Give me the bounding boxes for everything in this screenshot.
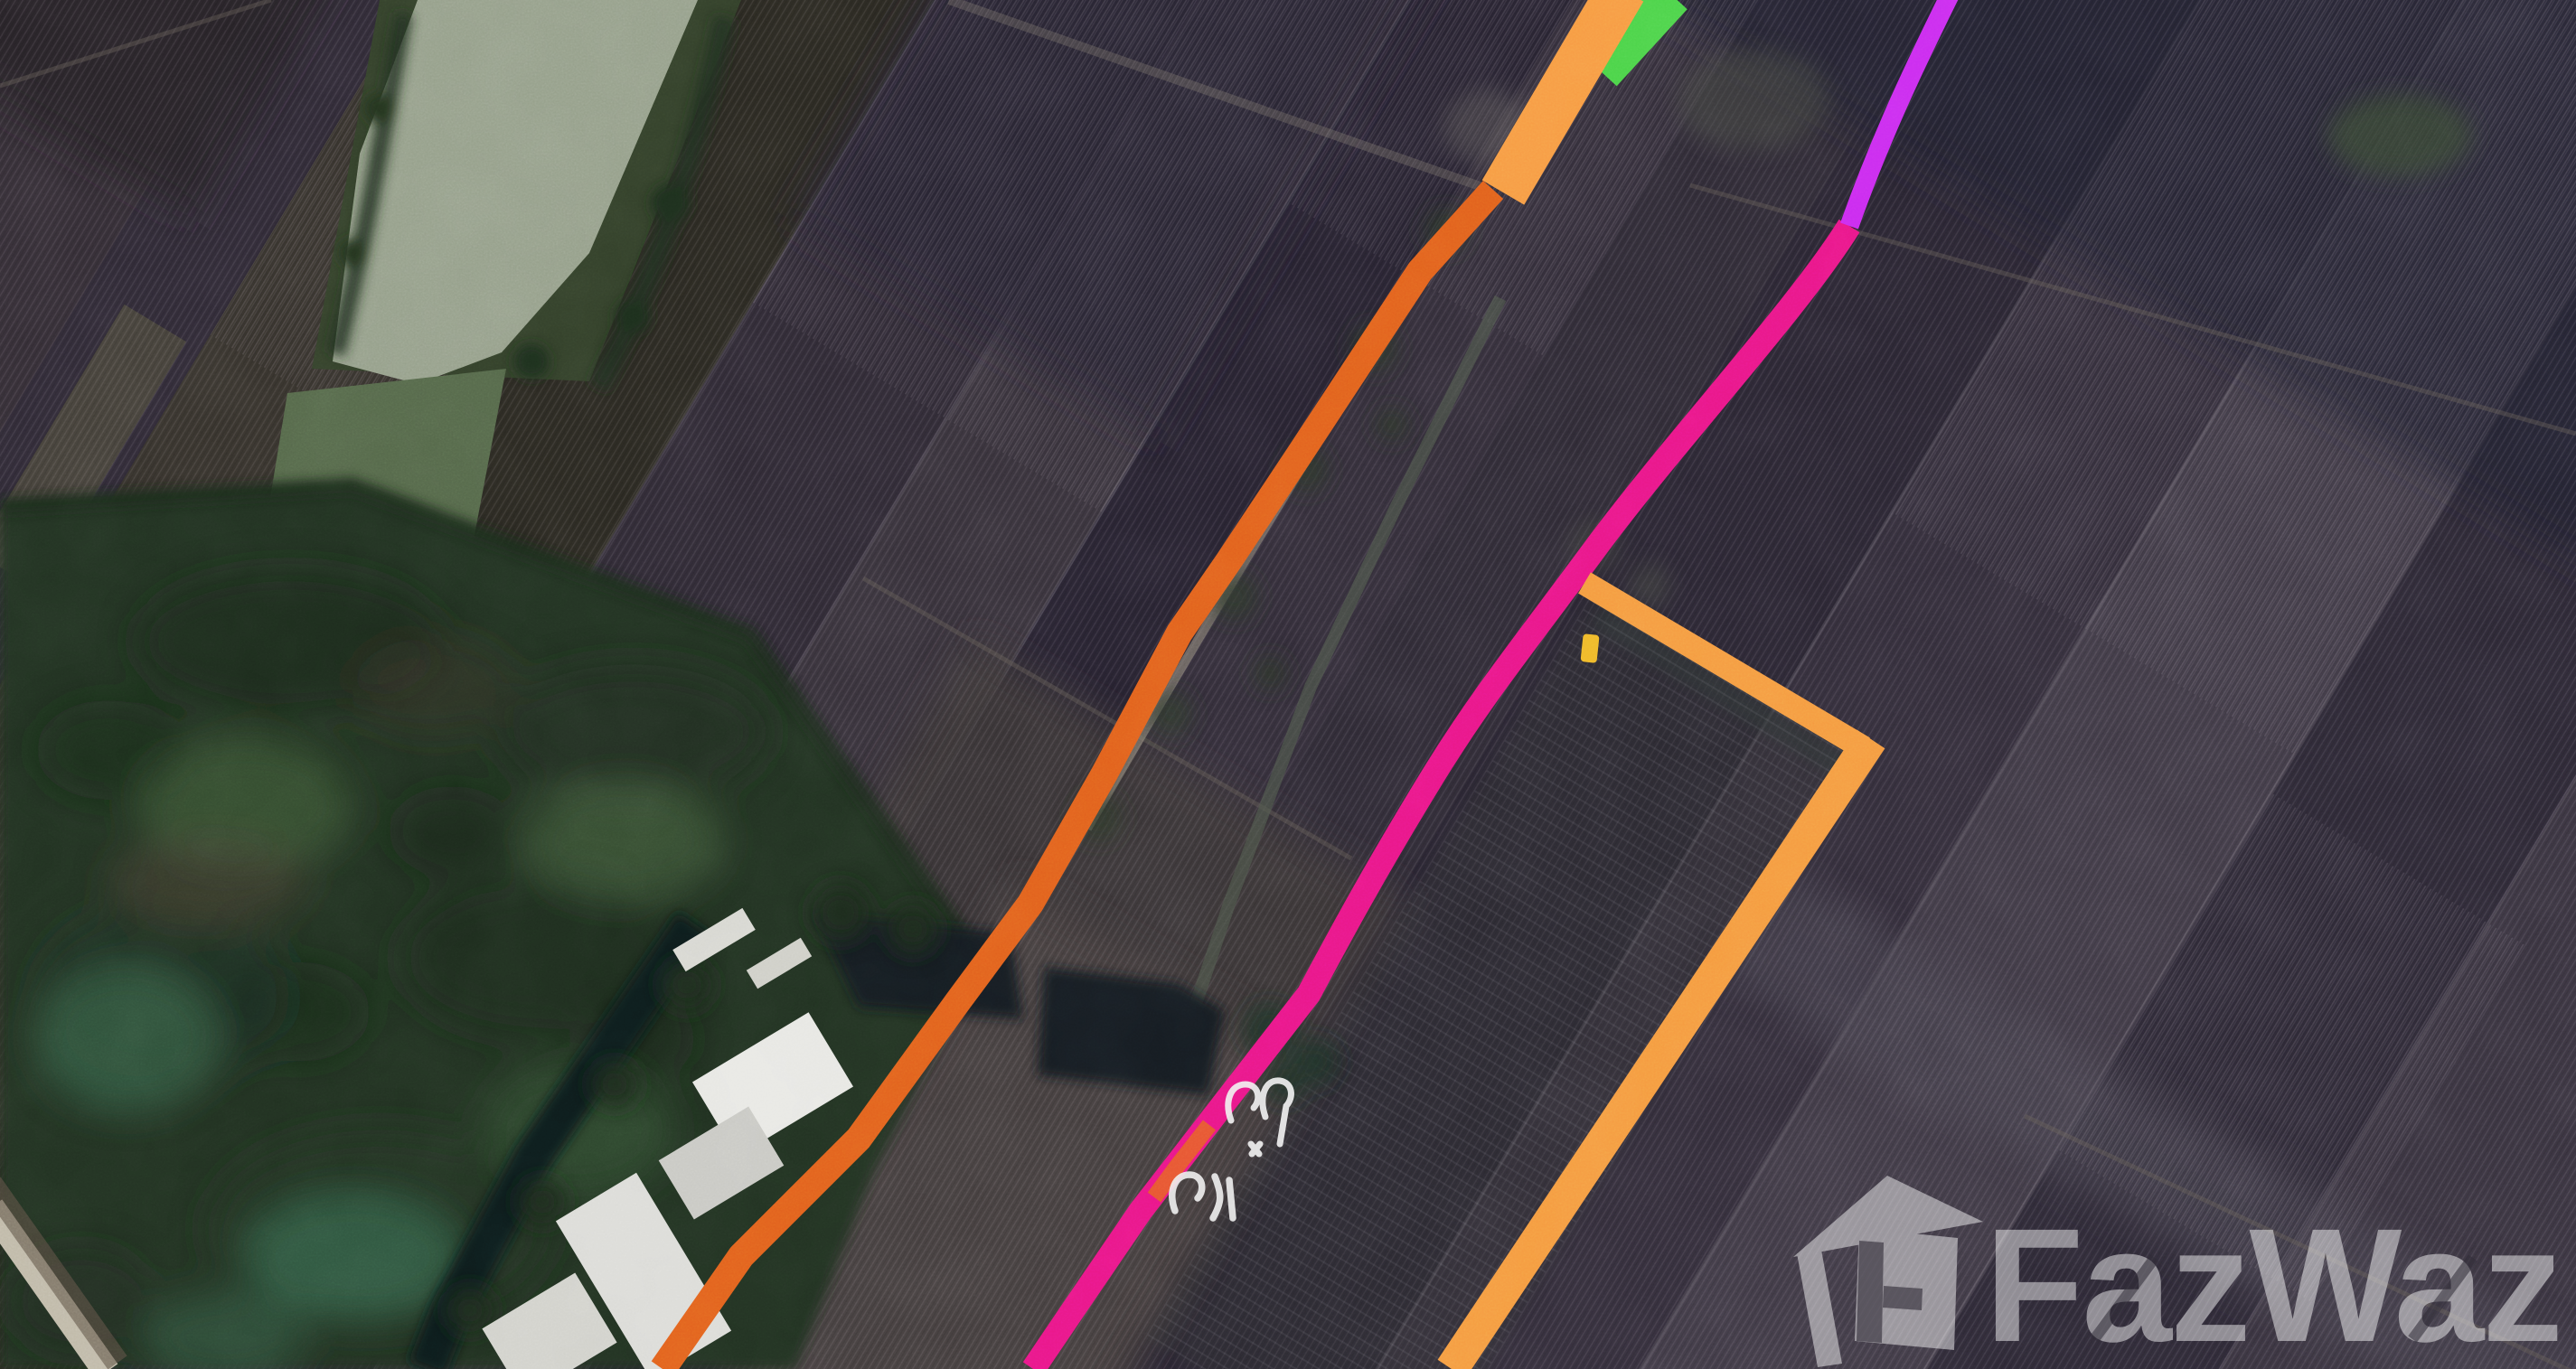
svg-text:FazWaz: FazWaz <box>1985 1195 2562 1369</box>
